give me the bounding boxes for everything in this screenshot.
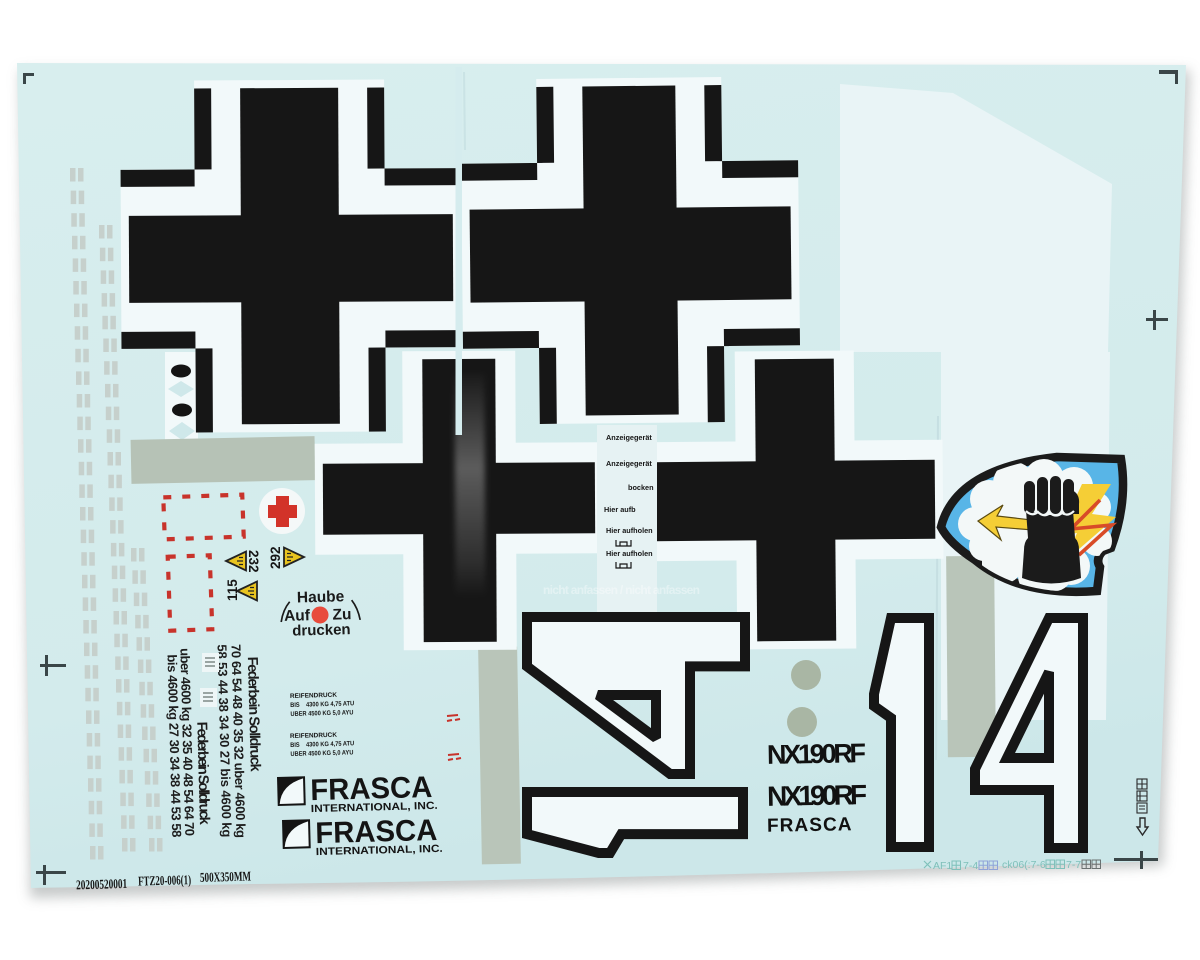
svg-text:AF1: AF1 bbox=[933, 860, 952, 872]
svg-text:20200520001: 20200520001 bbox=[76, 876, 128, 892]
svg-text:Haube: Haube bbox=[297, 588, 345, 606]
svg-text:FRASCA: FRASCA bbox=[767, 814, 853, 836]
svg-text:REIFENDRUCK: REIFENDRUCK bbox=[290, 732, 337, 740]
svg-text:Hier aufb: Hier aufb bbox=[604, 505, 636, 514]
svg-text:Anzeigegerät: Anzeigegerät bbox=[606, 433, 652, 442]
svg-text:7-4: 7-4 bbox=[963, 860, 978, 872]
svg-text:292: 292 bbox=[268, 546, 283, 569]
svg-text:Hier aufholen: Hier aufholen bbox=[606, 526, 653, 535]
svg-text:115: 115 bbox=[225, 579, 240, 601]
svg-text:NX190RF: NX190RF bbox=[767, 738, 867, 770]
svg-text:232: 232 bbox=[246, 550, 261, 573]
svg-text:nicht anfassen / nicht anfasse: nicht anfassen / nicht anfassen bbox=[543, 583, 700, 597]
svg-text:ck06(:7-6: ck06(:7-6 bbox=[1002, 859, 1046, 871]
svg-text:FTZ20-006(1): FTZ20-006(1) bbox=[138, 872, 191, 888]
svg-text:500X350MM: 500X350MM bbox=[200, 868, 252, 884]
svg-text:NX190RF: NX190RF bbox=[767, 779, 868, 812]
svg-text:bocken: bocken bbox=[628, 483, 654, 492]
svg-text:7-7: 7-7 bbox=[1066, 859, 1081, 871]
svg-text:Hier aufholen: Hier aufholen bbox=[606, 549, 653, 558]
svg-text:drucken: drucken bbox=[292, 621, 351, 640]
svg-text:REIFENDRUCK: REIFENDRUCK bbox=[290, 692, 337, 700]
svg-text:Anzeigegerät: Anzeigegerät bbox=[606, 459, 652, 468]
